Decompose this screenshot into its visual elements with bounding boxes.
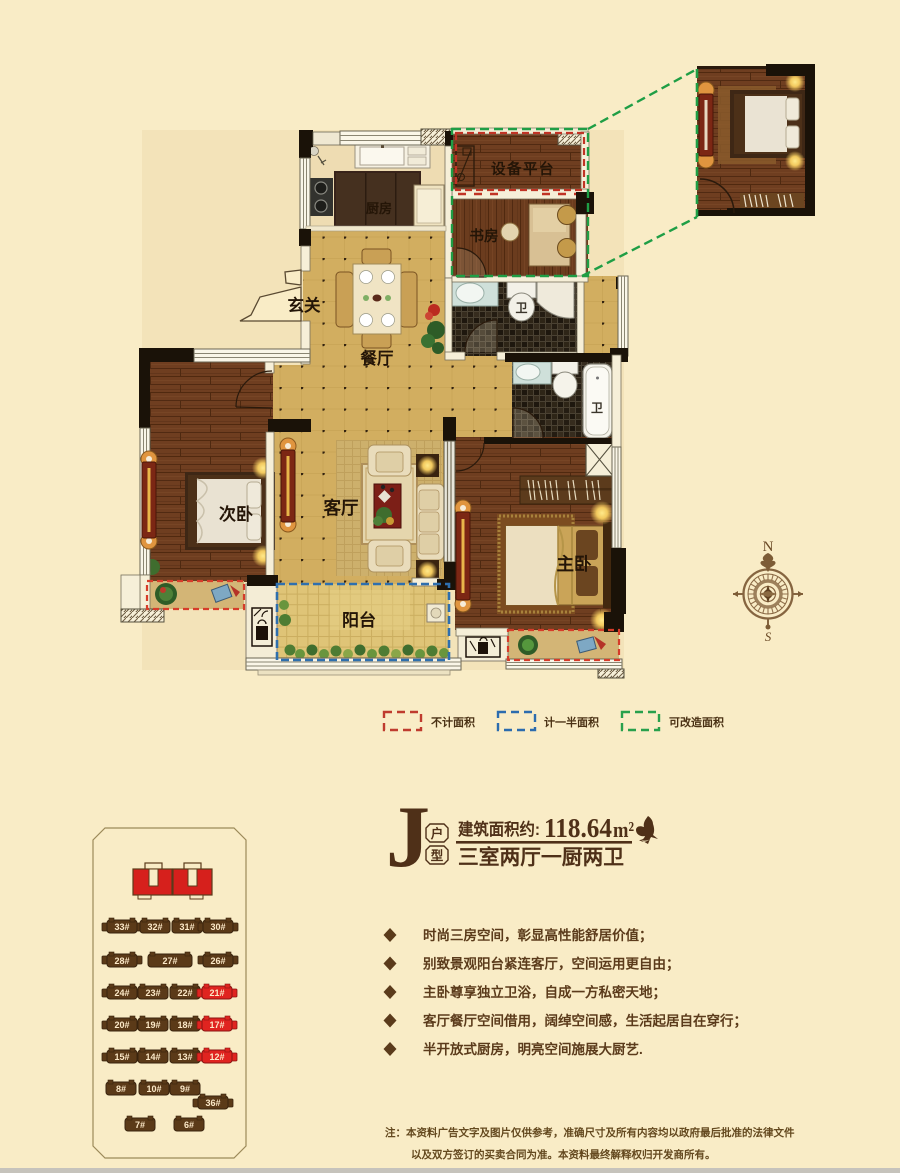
- svg-text:33#: 33#: [114, 922, 129, 932]
- svg-text:27#: 27#: [162, 956, 177, 966]
- svg-text:三室两厅一厨两卫: 三室两厅一厨两卫: [458, 845, 624, 869]
- svg-text:30#: 30#: [210, 922, 225, 932]
- svg-text:19#: 19#: [145, 1020, 160, 1030]
- svg-text:型: 型: [431, 848, 444, 863]
- svg-text:17#: 17#: [209, 1020, 224, 1030]
- svg-text:32#: 32#: [147, 922, 162, 932]
- svg-text:24#: 24#: [114, 988, 129, 998]
- svg-text:时尚三房空间，彰显高性能舒居价值；: 时尚三房空间，彰显高性能舒居价值；: [423, 927, 653, 944]
- svg-text:建筑面积约:: 建筑面积约:: [458, 819, 540, 839]
- svg-text:m²: m²: [613, 817, 634, 842]
- svg-text:S: S: [765, 629, 772, 644]
- svg-text:10#: 10#: [146, 1084, 161, 1094]
- svg-text:设备平台: 设备平台: [491, 160, 555, 178]
- svg-text:半开放式厨房，明亮空间施展大厨艺.: 半开放式厨房，明亮空间施展大厨艺.: [423, 1041, 643, 1057]
- svg-text:阳台: 阳台: [342, 610, 376, 630]
- svg-text:18#: 18#: [177, 1020, 192, 1030]
- svg-text:9#: 9#: [180, 1084, 190, 1094]
- svg-text:15#: 15#: [114, 1052, 129, 1062]
- svg-text:12#: 12#: [209, 1052, 224, 1062]
- svg-text:118.64: 118.64: [544, 813, 612, 843]
- svg-text:23#: 23#: [145, 988, 160, 998]
- svg-text:J: J: [386, 789, 430, 886]
- svg-text:卫: 卫: [515, 301, 527, 315]
- svg-text:注：本资料广告文字及图片仅供参考，准确尺寸及所有内容均以政府: 注：本资料广告文字及图片仅供参考，准确尺寸及所有内容均以政府最后批准的法律文件: [385, 1126, 795, 1139]
- svg-text:22#: 22#: [177, 988, 192, 998]
- svg-text:可改造面积: 可改造面积: [669, 715, 724, 729]
- svg-text:次卧: 次卧: [219, 504, 253, 524]
- svg-text:计一半面积: 计一半面积: [544, 715, 599, 729]
- svg-text:14#: 14#: [145, 1052, 160, 1062]
- svg-text:28#: 28#: [114, 956, 129, 966]
- svg-text:13#: 13#: [177, 1052, 192, 1062]
- svg-text:31#: 31#: [179, 922, 194, 932]
- svg-text:客厅: 客厅: [323, 498, 359, 518]
- svg-text:书房: 书房: [470, 227, 499, 245]
- svg-text:主卧: 主卧: [557, 554, 592, 574]
- svg-text:以及双方签订的买卖合同为准。本资料最终解释权归开发商所有。: 以及双方签订的买卖合同为准。本资料最终解释权归开发商所有。: [411, 1148, 716, 1161]
- svg-text:餐厅: 餐厅: [361, 348, 395, 368]
- svg-text:7#: 7#: [135, 1120, 145, 1130]
- svg-text:别致景观阳台紧连客厅，空间运用更自由；: 别致景观阳台紧连客厅，空间运用更自由；: [422, 956, 680, 973]
- svg-text:36#: 36#: [205, 1098, 220, 1108]
- svg-text:21#: 21#: [209, 988, 224, 998]
- svg-text:6#: 6#: [184, 1120, 194, 1130]
- svg-text:26#: 26#: [210, 956, 225, 966]
- svg-text:卫: 卫: [591, 401, 603, 415]
- svg-text:不计面积: 不计面积: [431, 715, 475, 729]
- svg-text:厨房: 厨房: [366, 201, 392, 216]
- svg-text:N: N: [763, 539, 774, 555]
- svg-text:客厅餐厅空间借用，阔绰空间感，生活起居自在穿行；: 客厅餐厅空间借用，阔绰空间感，生活起居自在穿行；: [422, 1013, 747, 1030]
- svg-text:20#: 20#: [114, 1020, 129, 1030]
- svg-text:主卧尊享独立卫浴，自成一方私密天地；: 主卧尊享独立卫浴，自成一方私密天地；: [423, 984, 666, 1001]
- svg-text:户: 户: [431, 826, 444, 841]
- svg-text:玄关: 玄关: [288, 295, 322, 315]
- svg-text:8#: 8#: [116, 1084, 126, 1094]
